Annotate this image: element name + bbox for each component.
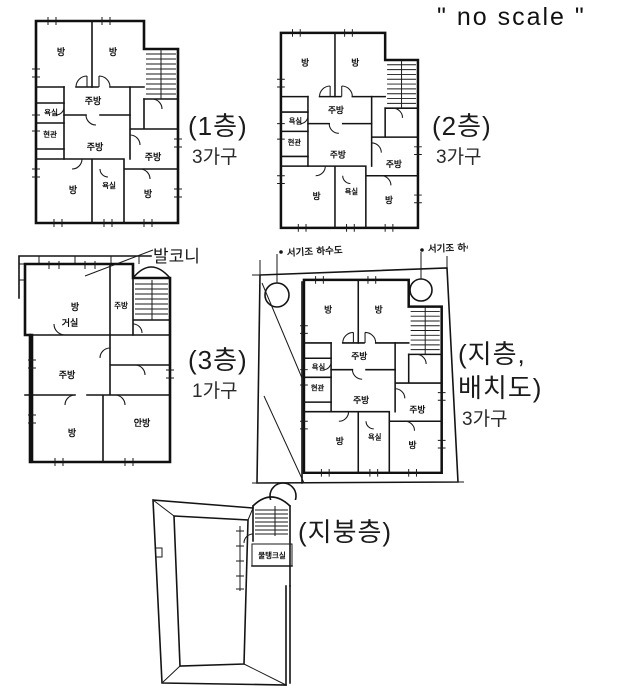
roof-hip-lines — [153, 500, 286, 685]
roof-outer-edge — [153, 500, 286, 685]
room-label: 주방 — [59, 369, 76, 381]
door-arc — [115, 395, 125, 405]
stairs-hatch — [255, 506, 288, 536]
basement-units: 3가구 — [462, 408, 542, 433]
sewer-annotation-left: 서기조 하수도 — [277, 244, 343, 283]
floor1-plan-drawing — [31, 16, 185, 230]
floor2-caption: (2층) 3가구 — [432, 110, 492, 170]
manhole-circle — [265, 283, 289, 307]
door-arc — [65, 395, 75, 405]
roof-plan-drawing: 물탱크실 — [140, 486, 318, 700]
left-notch — [156, 548, 162, 557]
room-label: 안방 — [134, 417, 151, 429]
scanned-floorplan-sheet: 방 방 주방 욕실 현관 주방 주방 방 욕실 방 " no scale " (… — [0, 0, 630, 700]
basement-title-line1: (지층, — [458, 338, 542, 372]
stairs-hatch — [135, 280, 168, 320]
annotation-dot — [420, 248, 424, 252]
door-arc — [244, 534, 253, 543]
floor1-units: 3가구 — [192, 146, 248, 171]
roof-inner-edge — [174, 516, 248, 666]
sewer-annotation-text: 서기조 하수도 — [428, 241, 468, 255]
annotation-dot — [279, 250, 283, 254]
stair-annex-arch — [133, 267, 170, 278]
floor3-title: (3층) — [188, 344, 248, 378]
floor1-title: (1층) — [188, 110, 248, 144]
floor3-units: 1가구 — [192, 380, 248, 405]
floor1-caption: (1층) 3가구 — [188, 110, 248, 170]
sewer-annotation-text: 서기조 하수도 — [287, 244, 344, 259]
door-arc — [135, 365, 145, 375]
room-label: 방 — [71, 301, 80, 313]
room-label: 거실 — [62, 317, 79, 329]
manhole-circle — [410, 279, 432, 301]
roof-title: (지붕층) — [298, 516, 392, 550]
basement-building — [300, 276, 446, 477]
right-wing-edge — [286, 586, 290, 685]
balcony-ticks — [19, 256, 139, 280]
balcony-callout-label: 발코니 — [153, 242, 200, 267]
basement-title-line2: 배치도) — [458, 372, 542, 406]
floor3-caption: (3층) 1가구 — [188, 344, 248, 404]
floor2-plan-drawing — [276, 28, 428, 240]
floor2-building — [277, 29, 422, 232]
tank-room-label: 물탱크실 — [258, 550, 286, 560]
room-label: 주방 — [114, 300, 128, 310]
floor3-building: 방 거실 주방 주방 방 안방 — [19, 250, 174, 466]
floor2-title: (2층) — [432, 110, 492, 144]
room-label: 방 — [68, 427, 77, 439]
roof-caption: (지붕층) — [298, 516, 392, 550]
door-arc — [100, 348, 110, 358]
bulkhead-arch — [253, 497, 290, 506]
basement-site-plan-drawing: 서기조 하수도 서기조 하수도 — [250, 238, 468, 500]
basement-caption: (지층, 배치도) 3가구 — [458, 338, 542, 432]
floor2-units: 3가구 — [436, 146, 492, 171]
no-scale-note: " no scale " — [437, 3, 586, 32]
sewer-annotation-right: 서기조 하수도 — [420, 241, 468, 279]
ramp-diagonal — [262, 283, 304, 483]
dimension-line — [236, 526, 244, 591]
door-arc — [133, 324, 142, 333]
floor1-building — [32, 17, 182, 227]
